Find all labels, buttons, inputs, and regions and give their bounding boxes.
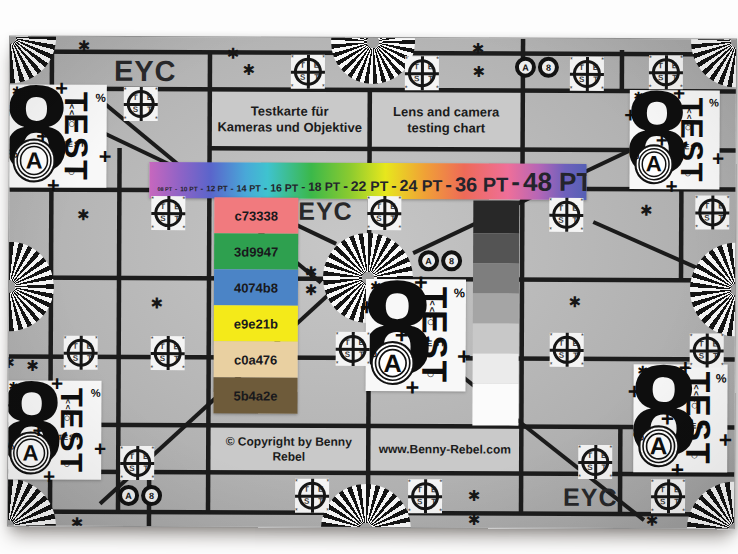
plus-mark: + [624,105,636,126]
crosshair-test-target: * * * * TE ST [151,336,185,370]
plus-mark: + [405,377,419,401]
pt-separator: - [264,183,268,192]
resolution-test-block: 8 A TEST + + + + + % % <<< TEST ○ ○ ✱ [7,84,106,187]
corner-star: * [680,54,683,61]
corner-star: * [549,226,552,233]
corner-star: * [95,335,98,342]
corner-star: * [550,332,553,339]
star-marker-icon: ✱ [468,513,481,528]
corner-star: * [439,478,442,485]
corner-star: * [367,331,370,338]
corner-star: * [295,478,298,485]
plus-mark: + [47,174,60,196]
corner-star: * [570,56,573,63]
roundel-8-icon: 8 [538,57,559,78]
color-patch-label: 5b4a2e [233,388,277,403]
percent-mark: % [91,388,101,399]
corner-star: * [367,195,370,202]
color-patch-c0a476: c0a476 [214,341,298,377]
crosshair-test-target: * * * * TE ST [651,479,685,513]
corner-star: * [120,445,123,452]
pt-size-label: 18 PT [308,182,340,193]
crosshair-test-target: * * * * TE ST [295,479,329,513]
color-patch-label: c0a476 [234,352,277,367]
crosshair-test-target: * * * * TE ST [120,446,154,480]
eyc-label-bottom-right: EYC [563,485,618,510]
circle-mark: ○ [684,169,691,181]
corner-star: * [651,478,654,485]
color-patch-5b4a2e: 5b4a2e [213,377,297,413]
roundel-8-icon: 8 [441,250,462,271]
percent-mark: % [454,287,465,300]
crosshair-test-target: * * * * TE ST [124,87,158,121]
roundel-8-digit: 8 [449,256,454,266]
corner-star: * [610,444,613,451]
star-marker-icon: ✱ [640,204,653,219]
target-cross-horizontal [151,212,185,215]
color-patch-column: c733383d99474074b8e9e21bc0a4765b4a2e [213,197,298,413]
target-cross-horizontal [124,102,158,105]
color-patch-c73338: c73338 [214,197,298,233]
color-patch-e9e21b: e9e21b [214,305,298,341]
test-chart: Testkarte für Kameras und Objektive Lens… [7,35,737,529]
star-marker-icon: ✱ [472,42,485,57]
roundel-pair: A 8 [118,485,162,506]
star-marker-icon: ✱ [7,356,15,371]
crosshair-test-target: * * * * TE ST [336,332,370,366]
color-patch-4074b8: 4074b8 [214,269,298,305]
block-star: ✱ [8,381,18,393]
plus-mark: + [457,345,471,369]
eyc-label-center: EYC [298,199,353,224]
corner-star: * [680,83,683,90]
circle-mark: ○ [691,399,699,412]
ring-a-letter: A [26,147,43,174]
percent-mark: % [7,441,14,452]
pt-separator: - [445,175,452,193]
corner-star: * [581,361,584,368]
ring-a-letter: A [22,440,38,466]
crosshair-test-target: * * * * TE ST [151,196,185,230]
star-marker-icon: ✱ [151,297,164,312]
percent-mark: % [633,430,644,442]
corner-star: * [580,226,583,233]
corner-star: * [690,332,693,339]
corner-star: * [727,195,730,202]
corner-star: * [182,224,185,231]
target-cross-horizontal [651,495,685,498]
pt-separator: - [391,179,396,193]
target-cross-horizontal [295,494,329,497]
star-marker-icon: ✱ [243,63,256,78]
roundel-8-icon: 8 [141,485,162,506]
crosshair-test-target: * * * * TE ST [550,333,584,367]
corner-star: * [291,54,294,61]
corner-star: * [124,115,127,122]
corner-star: * [690,361,693,368]
crosshair-test-target: * * * * TE ST [64,336,98,370]
plus-mark: + [360,296,374,320]
plus-mark: + [719,428,732,451]
corner-star: * [550,361,553,368]
color-patch-label: 3d9947 [234,244,278,259]
crosshair-test-target: * * * * TE ST [690,333,724,367]
corner-star: * [326,478,329,485]
crosshair-test-target: * * * * TE ST [549,198,583,232]
circle-mark: ○ [63,459,70,471]
corner-star: * [291,83,294,90]
plus-mark: + [414,271,428,295]
color-patch-label: c73338 [235,208,278,223]
corner-star: * [649,83,652,90]
ring-a-letter: A [383,349,401,378]
crosshair-test-target: * * * * TE ST [649,55,683,89]
grayscale-step [473,233,519,263]
pt-separator: - [301,182,305,193]
pt-size-label: 22 PT [351,180,388,193]
crosshair-test-target: * * * * TE ST [408,479,442,513]
plus-mark: + [36,126,49,148]
crosshair-test-target: * * * * TE ST [367,196,401,230]
corner-star: * [399,195,402,202]
percent-mark: % [716,372,727,384]
pt-separator: - [175,186,177,192]
corner-star: * [682,478,685,485]
corner-star: * [601,85,604,92]
grayscale-step [473,293,519,323]
corner-star: * [436,55,439,62]
resolution-test-block: 8 A TEST + + + + + % % <<< TEST ○ ○ ✱ [366,279,466,391]
corner-star: * [295,507,298,514]
star-marker-icon: ✱ [78,39,91,54]
pt-size-label: 12 PT [206,185,227,192]
corner-star: * [398,224,401,231]
pt-size-label: 16 PT [270,183,298,193]
small-test-word: TEST [62,140,86,148]
crosshair-test-target: * * * * TE ST [405,56,439,90]
corner-star: * [682,507,685,514]
crosshair-test-target: * * * * TE ST [578,445,612,479]
percent-mark: % [8,147,18,159]
circle-mark: ○ [64,412,71,424]
pt-size-label: 14 PT [237,184,261,192]
corner-star: * [405,55,408,62]
crosshair-test-target: * * * * TE ST [695,195,729,229]
corner-star: * [649,54,652,61]
target-cross-horizontal [570,72,604,75]
corner-star: * [322,54,325,61]
plus-mark: + [32,420,44,441]
small-test-word: TEST [679,144,702,152]
corner-star: * [182,335,185,342]
corner-star: * [336,360,339,367]
small-test-word: TEST [58,434,81,442]
grayscale-step [473,323,519,353]
corner-star: * [405,84,408,91]
star-marker-icon: ✱ [473,65,486,80]
corner-star: * [124,86,127,93]
plus-mark: + [55,77,68,99]
circle-mark: ○ [427,315,435,328]
corner-star: * [721,333,724,340]
plus-mark: + [628,380,641,403]
pt-size-label: 24 PT [400,179,443,194]
corner-star: * [151,195,154,202]
star-marker-icon: ✱ [569,295,582,310]
ring-a-letter: A [650,432,668,460]
target-cross-horizontal [578,460,612,463]
star-marker-icon: ✱ [26,359,39,374]
corner-star: * [183,195,186,202]
pt-separator: - [201,185,204,192]
circle-mark: ○ [68,118,76,130]
grayscale-step [472,383,518,425]
star-marker-icon: ✱ [77,208,90,223]
corner-star: * [549,197,552,204]
percent-mark: % [95,92,105,104]
corner-star: * [408,478,411,485]
target-cross-horizontal [405,72,439,75]
plus-mark: + [712,149,724,170]
pt-separator: - [343,180,348,193]
plus-mark: + [665,176,677,197]
block-star: ✱ [370,280,381,293]
circle-mark: ○ [691,450,699,463]
resolution-test-block: 8 A TEST + + + + + % % <<< TEST ○ ○ ✱ [629,90,719,189]
corner-star: * [155,115,158,122]
grayscale-step [473,353,519,383]
corner-star: * [151,335,154,342]
eyc-label-top-left: EYC [114,57,177,86]
plus-mark: + [43,467,55,488]
pt-size-label: 10 PT [180,186,197,192]
corner-star: * [695,223,698,230]
corner-star: * [578,444,581,451]
target-cross-horizontal [690,349,724,352]
corner-star: * [581,332,584,339]
pt-separator: - [511,170,520,193]
corner-star: * [326,507,329,514]
small-test-word: TEST [421,340,446,349]
plus-mark: + [395,324,409,348]
corner-star: * [151,474,154,481]
star-marker-icon: ✱ [646,514,659,529]
corner-star: * [336,331,339,338]
roundel-8-digit: 8 [546,62,551,72]
plus-mark: + [94,439,106,460]
corner-star: * [152,445,155,452]
grayscale-wedge [472,200,519,425]
resolution-test-block: 8 A TEST + + + + + % % <<< TEST ○ ○ ✱ [7,380,102,479]
target-cross-horizontal [649,71,683,74]
percent-mark: % [709,97,719,108]
corner-star: * [322,83,325,90]
ring-a-letter: A [646,151,662,177]
target-cross-horizontal [64,351,98,354]
color-patch-label: 4074b8 [234,280,278,295]
roundel-a-letter: A [522,62,529,72]
pt-separator: - [231,184,234,192]
plus-mark: + [7,395,11,416]
plus-mark: + [656,130,668,151]
pt-size-label: 48 PT [523,170,587,194]
target-cross-horizontal [291,70,325,73]
target-cross-horizontal [695,211,729,214]
resolution-test-block: 8 A TEST + + + + + % % <<< TEST ○ ○ ✱ [633,364,727,472]
star-marker-icon: ✱ [468,489,481,504]
corner-star: * [155,86,158,93]
target-cross-horizontal [550,348,584,351]
crosshair-test-target: * * * * TE ST [291,55,325,89]
plus-mark: + [99,146,112,168]
circle-mark: ○ [427,368,435,381]
star-marker-icon: ✱ [71,516,84,529]
corner-star: * [609,473,612,480]
circle-mark: ○ [68,166,76,178]
roundel-pair: A 8 [515,57,559,78]
corner-star: * [439,507,442,514]
target-cross-horizontal [408,495,442,498]
corner-star: * [570,85,573,92]
plus-mark: + [51,374,63,395]
target-cross-horizontal [120,461,154,464]
grayscale-step [473,263,519,293]
corner-star: * [695,194,698,201]
color-patch-3d9947: 3d9947 [214,233,298,269]
target-cross-horizontal [549,213,583,216]
roundel-a-icon: A [118,485,139,506]
plus-mark: + [7,100,15,122]
corner-star: * [120,474,123,481]
corner-star: * [64,335,67,342]
block-star: ✱ [637,365,648,378]
crosshair-test-target: * * * * TE ST [570,57,604,91]
percent-mark: % [630,150,640,161]
star-marker-icon: ✱ [305,283,318,298]
corner-star: * [151,364,154,371]
block-star: ✱ [633,91,643,103]
pt-size-label: 08 PT [157,187,172,192]
color-patch-label: e9e21b [234,316,278,331]
roundel-a-letter: A [125,490,132,500]
corner-star: * [95,364,98,371]
corner-star: * [601,56,604,63]
corner-star: * [182,364,185,371]
corner-star: * [436,84,439,91]
small-test-word: TEST [685,423,710,431]
roundel-8-digit: 8 [149,491,154,501]
corner-star: * [578,473,581,480]
star-marker-icon: ✱ [227,47,240,62]
plus-mark: + [661,407,674,430]
corner-star: * [726,224,729,231]
target-cross-horizontal [151,352,185,355]
star-marker-icon: ✱ [305,265,318,280]
pt-size-label: 36 PT [455,175,508,193]
photo-of-lens-test-chart: { "photo": { "background": "#fdfdfd" }, … [0,0,738,554]
corner-star: * [408,507,411,514]
circle-mark: ○ [685,122,692,134]
corner-star: * [367,360,370,367]
block-star: ✱ [12,85,22,97]
target-cross-horizontal [367,211,401,214]
grayscale-step [473,200,519,233]
corner-star: * [151,224,154,231]
corner-star: * [721,362,724,369]
roundel-a-icon: A [515,57,536,78]
target-cross-horizontal [336,347,370,350]
corner-star: * [64,364,67,371]
corner-star: * [367,224,370,231]
corner-star: * [581,197,584,204]
